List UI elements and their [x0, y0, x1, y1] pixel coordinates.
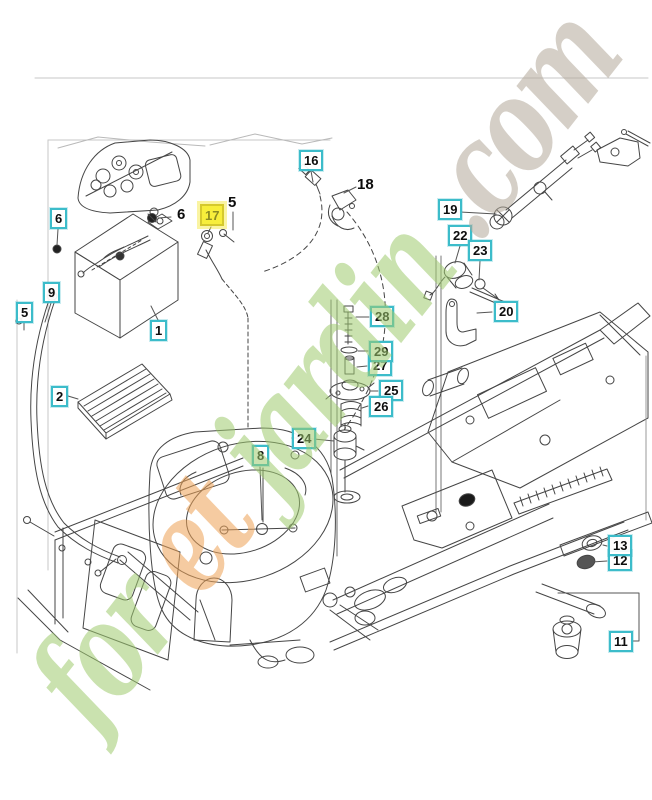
- callout-28[interactable]: 28: [370, 306, 394, 327]
- callout-24[interactable]: 24: [292, 428, 316, 449]
- callout-1[interactable]: 1: [150, 320, 167, 341]
- callout-2[interactable]: 2: [51, 386, 68, 407]
- callout-9[interactable]: 9: [43, 282, 60, 303]
- callout-6a[interactable]: 6: [50, 208, 67, 229]
- callout-6b[interactable]: 6: [177, 207, 185, 222]
- callout-23[interactable]: 23: [468, 240, 492, 261]
- callout-20[interactable]: 20: [494, 301, 518, 322]
- callout-5a[interactable]: 5: [228, 195, 236, 210]
- callout-5b[interactable]: 5: [16, 302, 33, 323]
- callout-8[interactable]: 8: [252, 445, 269, 466]
- callout-labels: 1 2 5 5 6 6 8 9 11 12 13 16 17 18 19 20 …: [0, 0, 652, 800]
- callout-13[interactable]: 13: [608, 535, 632, 556]
- callout-11[interactable]: 11: [609, 631, 633, 652]
- callout-16[interactable]: 16: [299, 150, 323, 171]
- callout-17-selected[interactable]: 17: [200, 204, 224, 226]
- callout-19[interactable]: 19: [438, 199, 462, 220]
- callout-26[interactable]: 26: [369, 396, 393, 417]
- callout-29[interactable]: 29: [369, 341, 393, 362]
- callout-18[interactable]: 18: [357, 177, 374, 192]
- parts-diagram-page: 1 2 5 5 6 6 8 9 11 12 13 16 17 18 19 20 …: [0, 0, 652, 800]
